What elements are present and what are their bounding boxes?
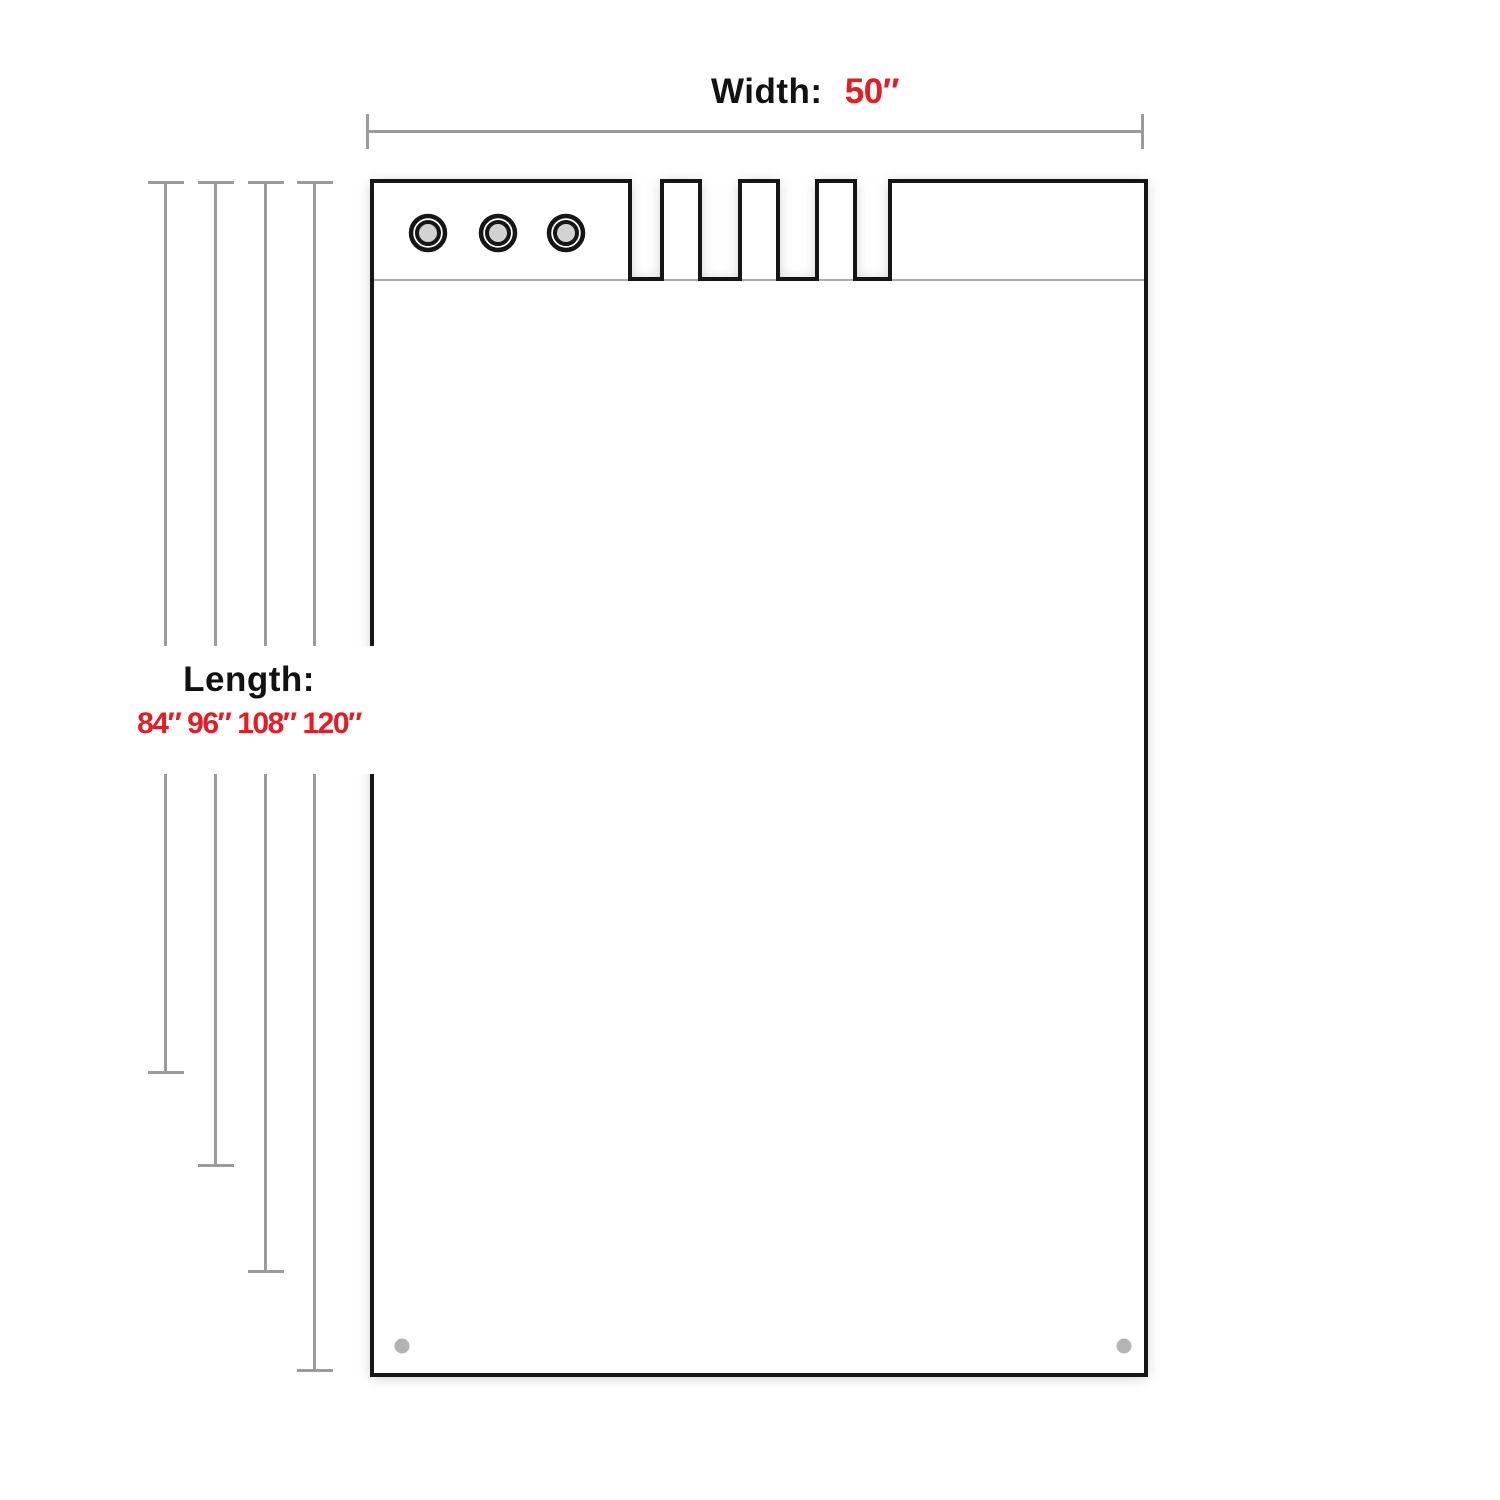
- grommet-icon: [549, 216, 583, 250]
- grommet-icon: [481, 216, 515, 250]
- easel-pad-sheet: [372, 181, 1146, 1375]
- length-label: Length: 84″ 96″ 108″ 120″: [124, 646, 374, 774]
- product-dimension-diagram: Width: 50″ Length: 84″ 96″ 108″ 120″: [0, 0, 1500, 1500]
- corner-hole-icon: [1117, 1339, 1132, 1354]
- grommet-icon: [411, 216, 445, 250]
- length-label-text: Length:: [124, 660, 374, 700]
- length-values-text: 84″ 96″ 108″ 120″: [124, 707, 374, 741]
- corner-hole-icon: [395, 1339, 410, 1354]
